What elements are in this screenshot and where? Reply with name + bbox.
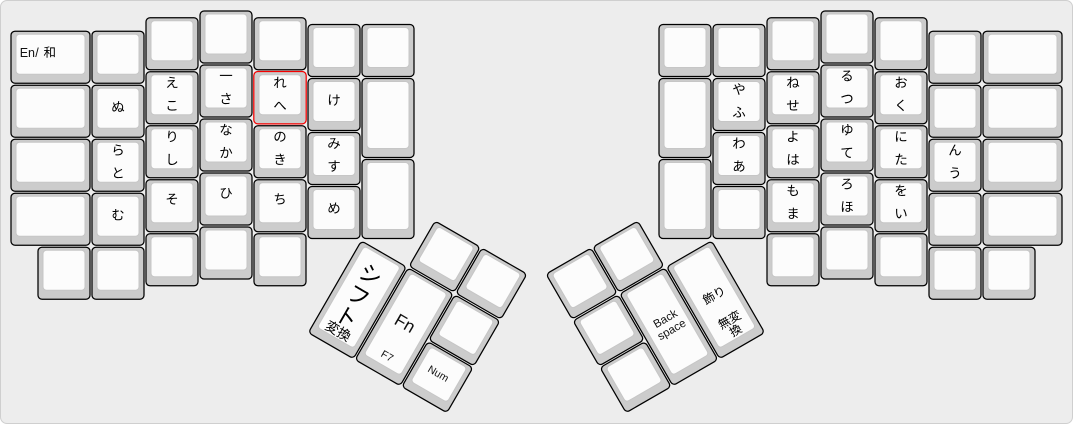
svg-text:/: / bbox=[35, 46, 39, 60]
svg-text:En: En bbox=[20, 46, 35, 60]
